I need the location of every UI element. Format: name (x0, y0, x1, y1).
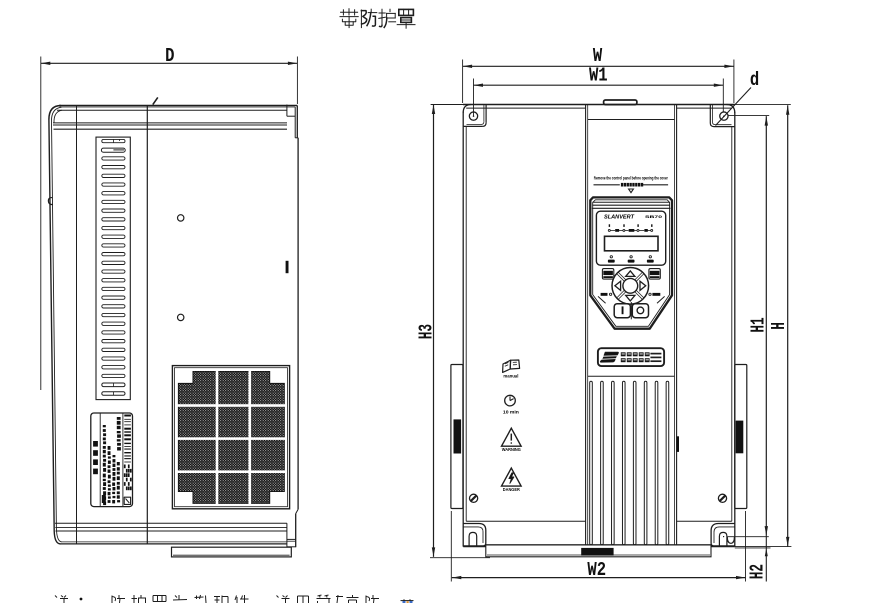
svg-text:SB70: SB70 (645, 214, 663, 219)
svg-text:W2: W2 (587, 561, 606, 582)
svg-text:10 min: 10 min (503, 409, 519, 414)
svg-text:H2: H2 (747, 564, 768, 579)
svg-text:manual: manual (503, 374, 518, 379)
svg-text:SLANVERT: SLANVERT (604, 215, 635, 221)
svg-text:DANGER: DANGER (503, 487, 520, 492)
svg-text:W: W (593, 47, 603, 68)
svg-text:WARNING: WARNING (502, 447, 521, 452)
svg-text:H: H (769, 322, 790, 330)
svg-text:Remove the control panel befor: Remove the control panel before opening … (594, 175, 668, 180)
svg-text:d: d (750, 71, 759, 92)
svg-text:W1: W1 (589, 66, 608, 87)
svg-text:D: D (165, 47, 174, 68)
svg-text:H1: H1 (748, 317, 769, 333)
svg-text:H3: H3 (416, 324, 437, 339)
